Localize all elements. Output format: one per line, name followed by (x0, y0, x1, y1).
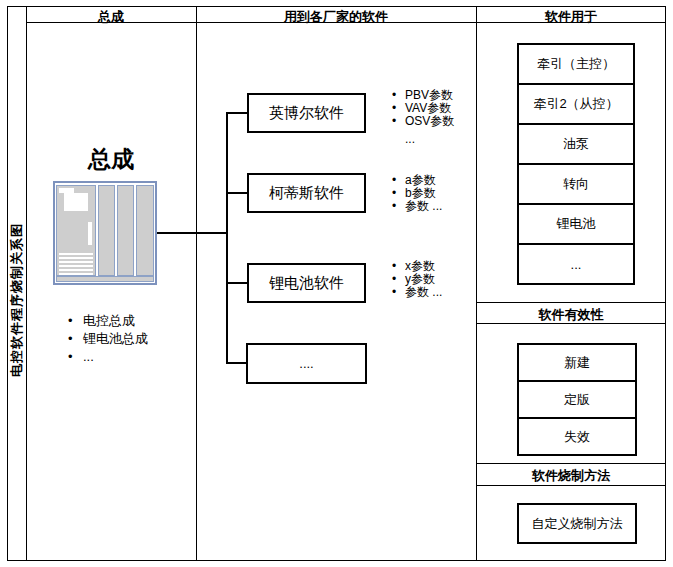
usage-target: ... (517, 243, 635, 285)
assembly-bullet-list: 电控总成 锂电池总成 ... (66, 312, 148, 366)
param-item: 参数 ... (391, 200, 481, 213)
usage-target: 牵引（主控） (517, 43, 635, 85)
cabinet-panel-4 (136, 185, 154, 276)
connector-main (157, 232, 227, 234)
usage-target: 锂电池 (517, 203, 635, 245)
connector-branch-3 (228, 282, 247, 284)
connector-trunk (226, 112, 228, 364)
connector-branch-4 (228, 362, 247, 364)
column-header-usage: 软件用于 (476, 8, 666, 26)
cabinet-panel-3 (117, 185, 134, 276)
cabinet-base (56, 276, 154, 282)
validity-state: 新建 (517, 343, 637, 382)
diagram-side-title: 电控软件程序烧制关系图 (8, 223, 26, 377)
usage-target-stack: 牵引（主控） 牵引2（从控） 油泵 转向 锂电池 ... (517, 43, 635, 285)
connector-branch-1 (228, 112, 247, 114)
column-divider-1 (196, 6, 197, 561)
validity-band-bottom-line (476, 323, 666, 324)
params-curtis: a参数 b参数 参数 ... (391, 174, 481, 213)
node-more-software: .... (246, 343, 367, 384)
usage-target: 牵引2（从控） (517, 83, 635, 125)
assembly-item: 电控总成 (66, 312, 148, 330)
burn-section-header: 软件烧制方法 (476, 467, 666, 485)
param-item: OSV参数 (391, 115, 481, 128)
params-enpower: PBV参数 VAV参数 OSV参数 ... (391, 89, 481, 146)
cabinet-panel-2 (98, 185, 115, 276)
node-curtis-software: 柯蒂斯软件 (247, 173, 366, 213)
column-header-assembly: 总成 (26, 8, 196, 26)
connector-branch-2 (228, 192, 247, 194)
param-item: ... (391, 133, 481, 146)
burn-band-top-line (476, 463, 666, 464)
validity-state: 定版 (517, 380, 637, 419)
node-lithium-battery-software: 锂电池软件 (247, 263, 366, 303)
assembly-title: 总成 (31, 144, 191, 175)
validity-band-top-line (476, 302, 666, 303)
side-strip-divider (26, 6, 27, 561)
assembly-item: ... (66, 348, 148, 366)
validity-state-stack: 新建 定版 失效 (517, 343, 637, 456)
burn-method-box: 自定义烧制方法 (517, 503, 637, 544)
validity-state: 失效 (517, 417, 637, 456)
usage-target: 油泵 (517, 123, 635, 165)
cabinet-panel-left (56, 185, 96, 276)
validity-section-header: 软件有效性 (476, 306, 666, 324)
assembly-item: 锂电池总成 (66, 330, 148, 348)
usage-target: 转向 (517, 163, 635, 205)
column-header-vendors: 用到各厂家的软件 (196, 8, 476, 26)
param-item: 参数 ... (391, 286, 481, 299)
node-enpower-software: 英博尔软件 (247, 93, 366, 133)
burn-band-bottom-line (476, 485, 666, 486)
cabinet-graphic (53, 181, 157, 285)
params-lithium: x参数 y参数 参数 ... (391, 260, 481, 299)
diagram-canvas: 电控软件程序烧制关系图 总成 用到各厂家的软件 软件用于 总成 电控总成 锂电池… (0, 0, 673, 567)
